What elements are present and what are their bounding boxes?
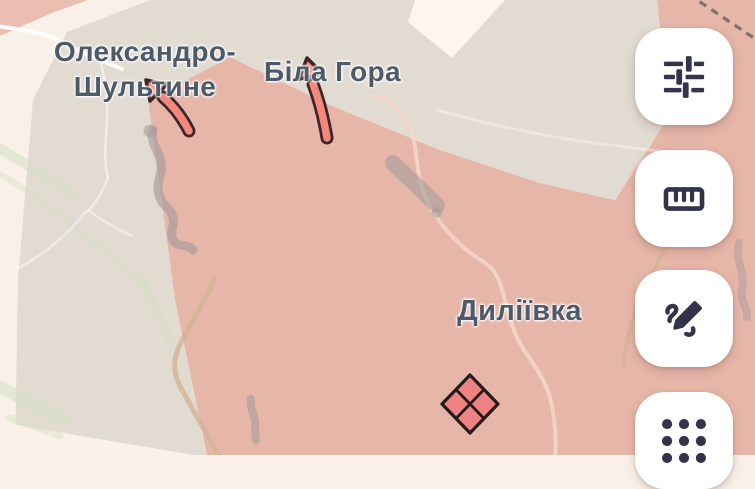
draw-scribble-icon (661, 296, 707, 342)
map-app-screen: { "map": { "labels": [ { "id": "oleksand… (0, 0, 755, 455)
toolbar-button-draw[interactable] (635, 270, 733, 367)
toolbar-button-measure[interactable] (635, 150, 733, 247)
toolbar-button-adjustments[interactable] (635, 28, 733, 125)
tune-sliders-icon (661, 54, 707, 100)
ruler-icon (661, 176, 707, 222)
dots-grid-icon (655, 412, 713, 470)
toolbar-button-apps[interactable] (635, 392, 733, 489)
map-viewport[interactable]: Олександро- Шультине Біла Гора Диліївка (0, 0, 755, 455)
